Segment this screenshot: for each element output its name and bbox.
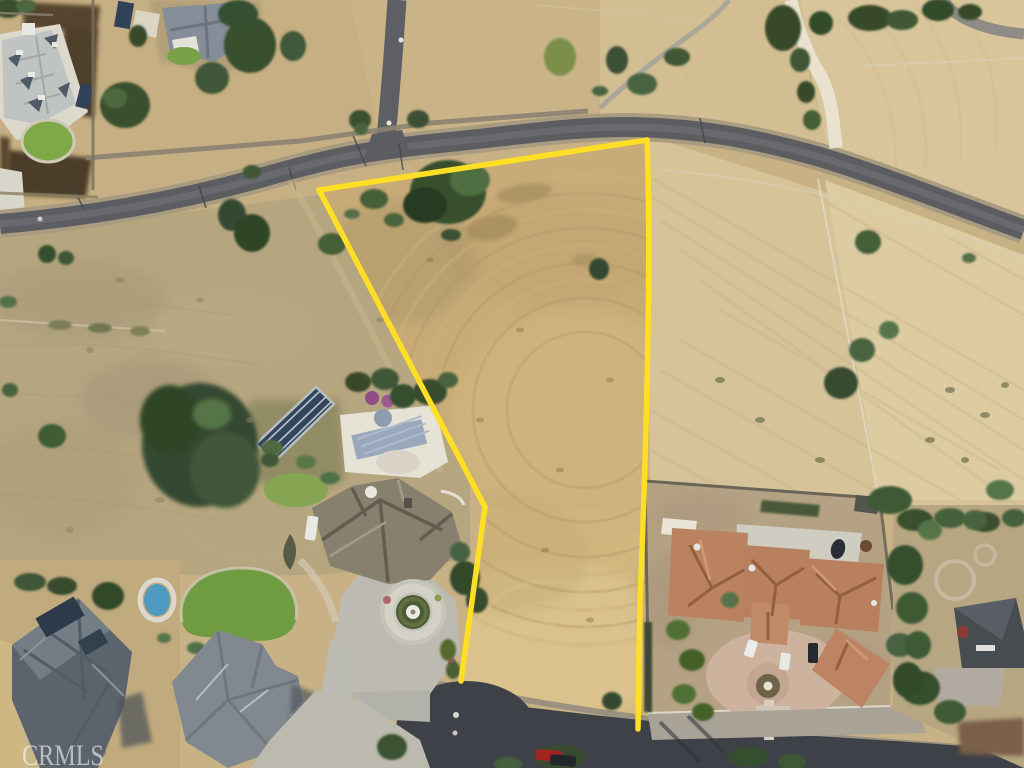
svg-text:CRMLS: CRMLS xyxy=(22,739,104,768)
